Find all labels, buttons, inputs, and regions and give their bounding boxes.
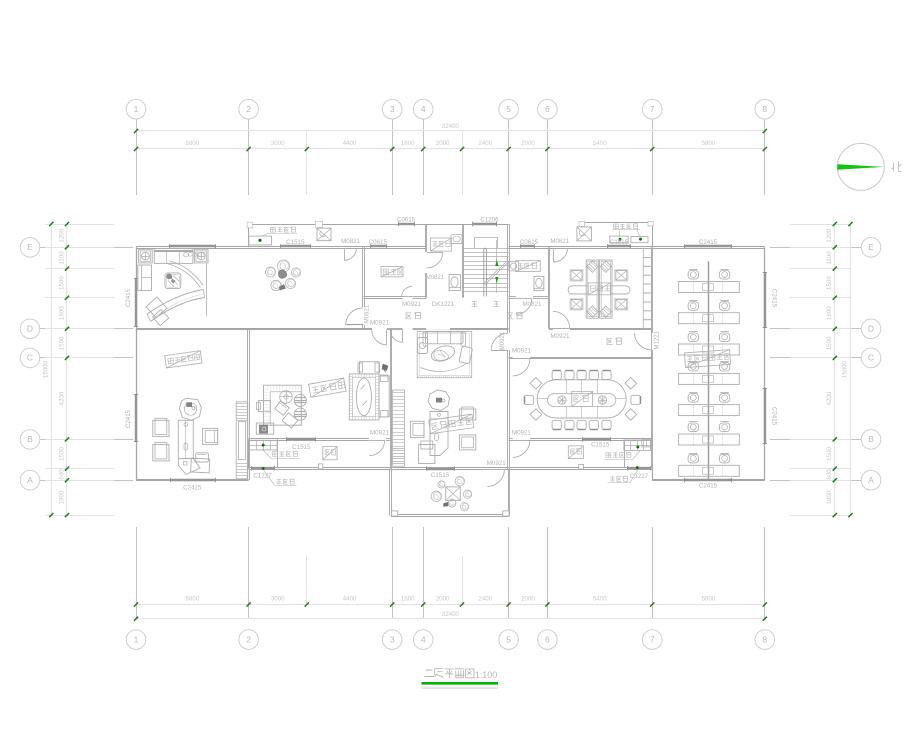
- svg-text:M0921: M0921: [402, 301, 421, 308]
- svg-text:2: 2: [246, 104, 251, 114]
- svg-text:1500: 1500: [59, 336, 66, 350]
- svg-text:C1227: C1227: [630, 473, 649, 480]
- svg-text:6: 6: [545, 104, 550, 114]
- svg-text:M0821: M0821: [341, 238, 360, 245]
- svg-text:5800: 5800: [185, 140, 199, 147]
- svg-text:1800: 1800: [59, 490, 66, 504]
- svg-text:15000: 15000: [43, 360, 50, 378]
- svg-text:8: 8: [762, 634, 767, 644]
- svg-text:4: 4: [421, 634, 426, 644]
- svg-text:M1221: M1221: [654, 330, 660, 349]
- svg-text:5: 5: [506, 104, 511, 114]
- svg-text:C1515: C1515: [292, 444, 311, 451]
- svg-text:7: 7: [650, 634, 655, 644]
- svg-text:C1515: C1515: [591, 442, 610, 449]
- svg-text:1600: 1600: [401, 140, 415, 147]
- svg-text:5400: 5400: [593, 596, 607, 603]
- svg-text:1: 1: [134, 104, 139, 114]
- svg-text:8: 8: [762, 104, 767, 114]
- svg-text:M0921: M0921: [512, 348, 531, 355]
- svg-text:C0615: C0615: [520, 239, 539, 246]
- svg-text:M0821: M0821: [550, 238, 569, 245]
- svg-text:C2415: C2415: [183, 484, 202, 491]
- svg-text:2000: 2000: [521, 596, 535, 603]
- svg-text:C2415: C2415: [188, 252, 207, 259]
- svg-text:C1515: C1515: [286, 239, 305, 246]
- svg-text:5800: 5800: [185, 596, 199, 603]
- svg-text:C2415: C2415: [771, 407, 778, 426]
- svg-text:1600: 1600: [59, 306, 66, 320]
- svg-text:C1515: C1515: [431, 472, 450, 479]
- svg-text:1500: 1500: [59, 276, 66, 290]
- svg-text:DK1221: DK1221: [432, 301, 455, 308]
- svg-text:3000: 3000: [271, 140, 285, 147]
- svg-text:1100: 1100: [826, 251, 833, 265]
- svg-text:M0921: M0921: [551, 333, 570, 340]
- svg-text:2400: 2400: [478, 596, 492, 603]
- svg-text:4: 4: [421, 104, 426, 114]
- svg-text:1500: 1500: [59, 447, 66, 461]
- svg-text:1600: 1600: [401, 596, 415, 603]
- svg-text:1100: 1100: [59, 251, 66, 265]
- svg-text:C1206: C1206: [480, 217, 499, 224]
- svg-text:1:100: 1:100: [475, 670, 498, 680]
- svg-text:15000: 15000: [842, 360, 849, 378]
- svg-text:5400: 5400: [593, 140, 607, 147]
- svg-text:1600: 1600: [826, 306, 833, 320]
- svg-text:5800: 5800: [702, 140, 716, 147]
- svg-text:2000: 2000: [436, 140, 450, 147]
- svg-text:2: 2: [246, 634, 251, 644]
- svg-text:D: D: [868, 324, 874, 334]
- svg-text:1: 1: [134, 634, 139, 644]
- svg-text:4400: 4400: [343, 596, 357, 603]
- svg-text:C2415: C2415: [125, 409, 132, 428]
- svg-text:C2415: C2415: [771, 289, 778, 308]
- svg-text:C2415: C2415: [699, 482, 718, 489]
- svg-text:600: 600: [59, 469, 66, 480]
- svg-text:3: 3: [390, 104, 395, 114]
- svg-text:4400: 4400: [343, 140, 357, 147]
- svg-text:1500: 1500: [826, 447, 833, 461]
- svg-text:4200: 4200: [826, 391, 833, 405]
- svg-text:B: B: [27, 434, 33, 444]
- svg-text:1200: 1200: [826, 228, 833, 242]
- svg-text:C: C: [27, 353, 33, 363]
- svg-text:C2415: C2415: [125, 288, 132, 307]
- svg-text:2400: 2400: [478, 140, 492, 147]
- svg-text:M0921: M0921: [500, 331, 506, 350]
- svg-text:4200: 4200: [59, 391, 66, 405]
- svg-text:6: 6: [545, 634, 550, 644]
- svg-text:M0821: M0821: [523, 301, 542, 308]
- svg-text:D: D: [27, 324, 33, 334]
- svg-text:M0921: M0921: [487, 460, 506, 467]
- svg-text:7: 7: [650, 104, 655, 114]
- svg-text:C0615: C0615: [369, 239, 388, 246]
- svg-text:5: 5: [506, 634, 511, 644]
- svg-text:C2415: C2415: [699, 239, 718, 246]
- svg-text:C: C: [868, 353, 874, 363]
- svg-text:3000: 3000: [271, 596, 285, 603]
- svg-text:1500: 1500: [826, 276, 833, 290]
- svg-text:M0921: M0921: [370, 320, 389, 327]
- svg-text:32400: 32400: [442, 123, 460, 130]
- svg-text:2000: 2000: [436, 596, 450, 603]
- svg-text:1200: 1200: [59, 228, 66, 242]
- svg-text:E: E: [868, 242, 874, 252]
- svg-text:B: B: [868, 434, 874, 444]
- svg-text:M0921: M0921: [370, 430, 389, 437]
- svg-text:5800: 5800: [702, 596, 716, 603]
- svg-text:600: 600: [826, 469, 833, 480]
- svg-text:1500: 1500: [826, 336, 833, 350]
- svg-text:E: E: [27, 242, 33, 252]
- svg-text:3: 3: [390, 634, 395, 644]
- svg-text:C1515: C1515: [610, 239, 629, 246]
- svg-text:C0615: C0615: [397, 217, 416, 224]
- svg-text:M0921: M0921: [512, 429, 531, 436]
- svg-text:2000: 2000: [521, 140, 535, 147]
- svg-text:1800: 1800: [826, 490, 833, 504]
- svg-text:M0821: M0821: [426, 275, 445, 281]
- svg-text:A: A: [868, 475, 874, 485]
- svg-text:32400: 32400: [442, 611, 460, 618]
- svg-text:A: A: [27, 475, 33, 485]
